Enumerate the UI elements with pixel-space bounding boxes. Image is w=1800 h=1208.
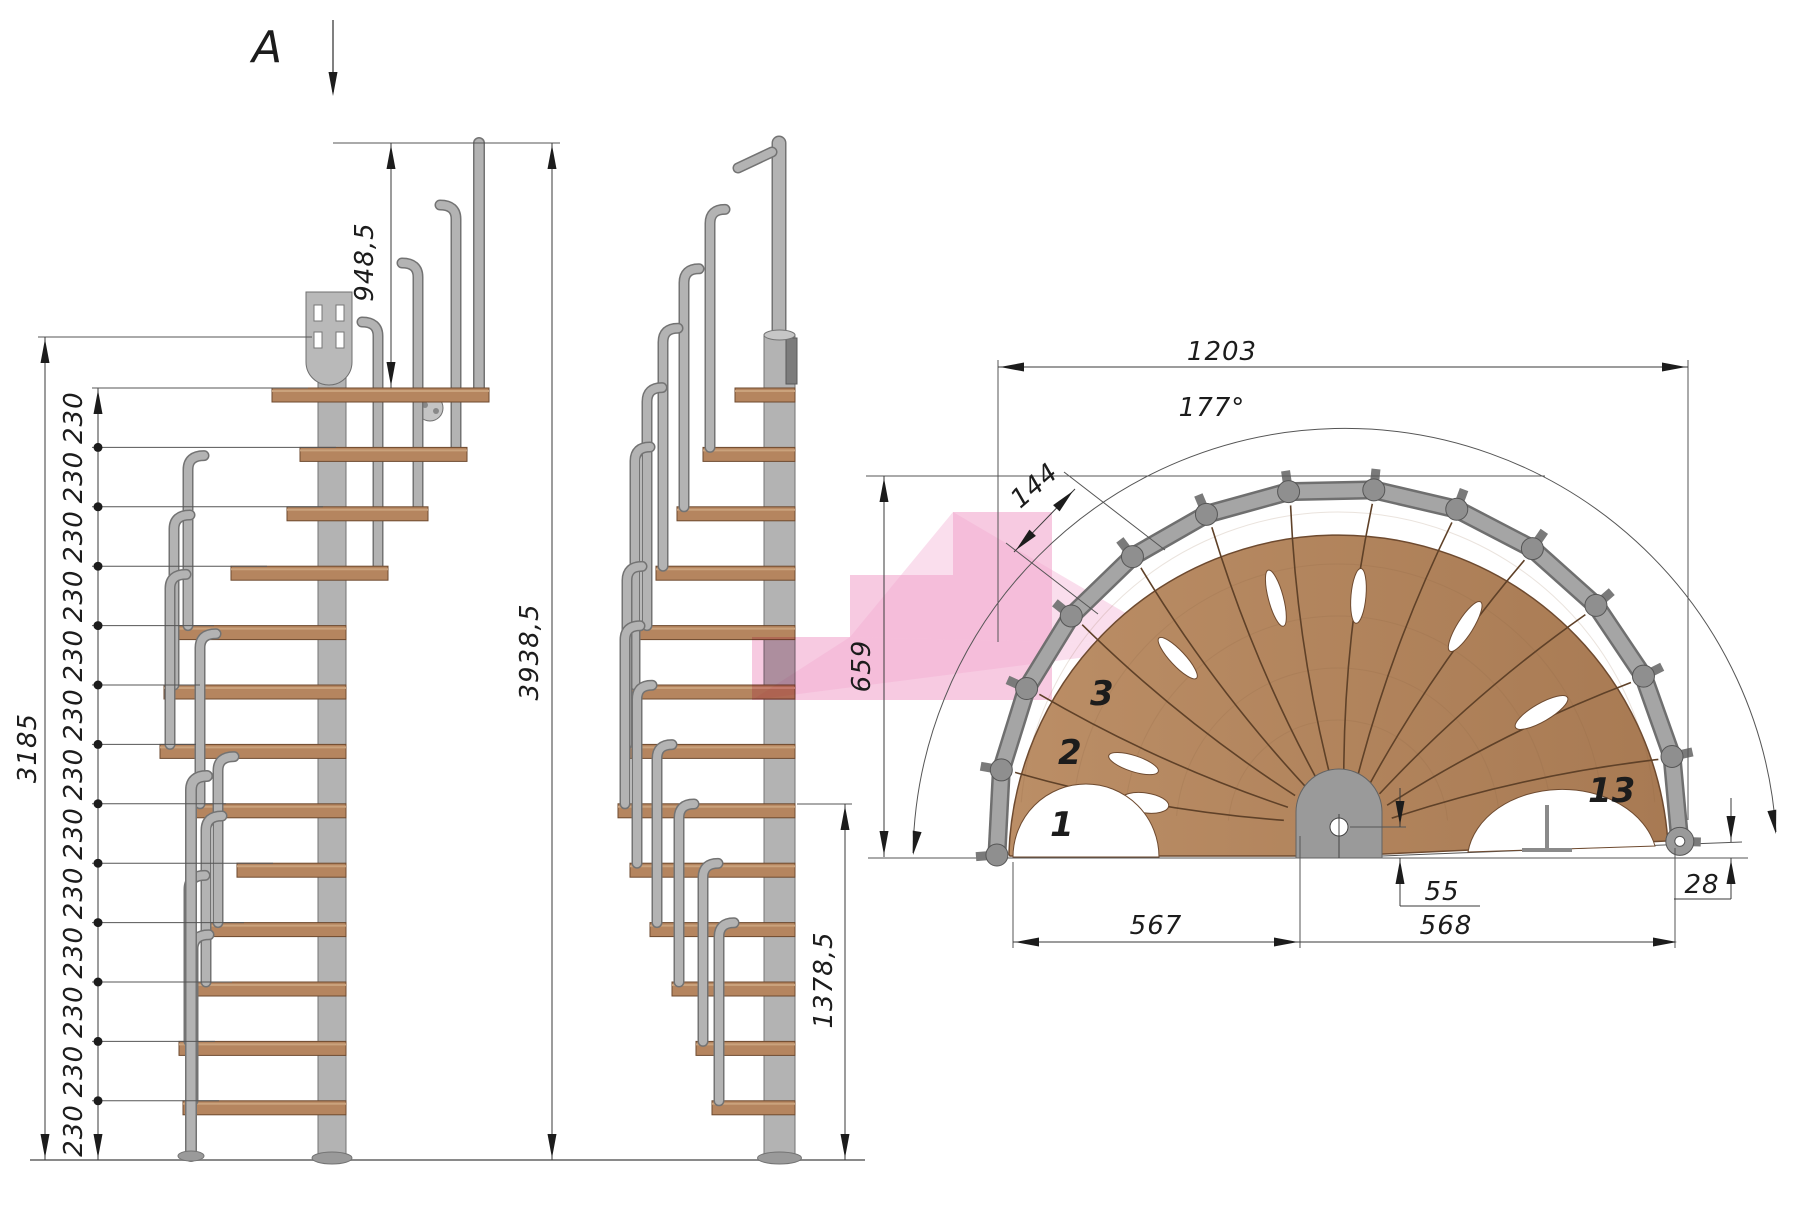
dim-dot (94, 562, 103, 571)
dim-sweep-angle: 177° (1179, 393, 1246, 423)
step-number-1: 1 (1050, 805, 1074, 845)
post-foot (178, 1151, 204, 1161)
dim-230-label: 230 (59, 985, 89, 1038)
handrail-knuckle (1446, 498, 1468, 520)
dim-dot (94, 681, 103, 690)
dim-right-half: 568 (1420, 911, 1473, 941)
section-arrow-label: A (249, 22, 282, 73)
handrail-tube (1289, 490, 1374, 492)
dim-arrow (1274, 938, 1298, 947)
handrail-tube (1374, 490, 1457, 509)
handrail-tube (1457, 509, 1533, 548)
handrail-tube (1596, 605, 1644, 676)
tube (663, 328, 678, 566)
dim-dot (94, 1037, 103, 1046)
left-pole-foot (312, 1152, 352, 1164)
handrail-knuckle (1632, 665, 1654, 687)
tube (188, 456, 204, 626)
dim-230-label: 230 (59, 688, 89, 741)
handrail-knuckle (1060, 605, 1082, 627)
plate-slot (314, 305, 322, 321)
dim-arrow (1396, 860, 1405, 884)
dim-end-offset: 28 (1684, 870, 1719, 900)
dim-total-height: 3938,5 (515, 604, 545, 701)
staircase-drawing: 230230230230230230230230230230230230230 … (0, 0, 1800, 1208)
dim-arrow (841, 1134, 850, 1158)
tube (719, 923, 734, 1101)
dim-arrow (1015, 938, 1039, 947)
dim-230-label: 230 (59, 1104, 89, 1157)
dim-arrow (880, 478, 889, 502)
handrail-knuckle (1121, 546, 1143, 568)
dim-dot (94, 502, 103, 511)
tube (710, 209, 725, 447)
dim-230-label: 230 (59, 451, 89, 504)
dim-arrow (880, 831, 889, 855)
step-number-3: 3 (1090, 674, 1114, 714)
arc-arrow-left (913, 831, 922, 855)
dim-230-label: 230 (59, 867, 89, 920)
dim-dot (94, 621, 103, 630)
dim-arrow (387, 362, 396, 386)
tube (218, 757, 234, 923)
dim-center-offset: 55 (1424, 877, 1459, 907)
pole-connector (786, 338, 797, 384)
dim-dot (94, 1096, 103, 1105)
flange-hole (433, 408, 439, 414)
handrail-knuckle (1278, 481, 1300, 503)
dim-230-label: 230 (59, 807, 89, 860)
step-number-2: 2 (1058, 733, 1082, 773)
drawing-sheet: 230230230230230230230230230230230230230 … (0, 0, 1800, 1208)
arc-arrow-right (1767, 810, 1776, 834)
handrail-tube (1132, 514, 1206, 556)
dim-arrow (841, 806, 850, 830)
dim-dot (94, 799, 103, 808)
handrail-knuckle (986, 844, 1008, 866)
dim-rail-height: 948,5 (350, 222, 380, 301)
ext-144-b (1064, 472, 1165, 550)
tube (637, 685, 652, 863)
dim-dot (94, 859, 103, 868)
dim-230-label: 230 (59, 629, 89, 682)
dim-arrow (41, 1134, 50, 1158)
handrail-knuckle (1363, 479, 1385, 501)
dim-dot (94, 918, 103, 927)
dim-dot (94, 978, 103, 987)
dim-arrow (1000, 363, 1024, 372)
dim-left-half: 567 (1130, 911, 1183, 941)
dim-arrow (94, 390, 103, 414)
handrail-tube (1532, 549, 1596, 606)
dim-stair-height: 3185 (13, 713, 43, 783)
left-pole (318, 300, 346, 1160)
pole-cap (764, 330, 795, 340)
dim-dot (94, 443, 103, 452)
dim-230-label: 230 (59, 926, 89, 979)
dim-arrow (387, 145, 396, 169)
handrail-knuckle (1195, 503, 1217, 525)
handrail-knuckle (990, 759, 1012, 781)
section-arrow-head (329, 72, 338, 96)
wall-plate (306, 292, 352, 385)
dim-arrow (1727, 816, 1736, 840)
tube (684, 269, 699, 507)
dim-arrow (1662, 363, 1686, 372)
dim-arrow (1727, 860, 1736, 884)
dim-arrow (41, 339, 50, 363)
plate-slot (336, 332, 344, 348)
dim-230-label: 230 (59, 748, 89, 801)
handrail-tube (997, 770, 1001, 855)
dim-overall-width: 1203 (1187, 337, 1257, 367)
plate-slot (336, 305, 344, 321)
tube (402, 263, 418, 507)
handrail-knuckle (1661, 745, 1683, 767)
dim-arrow (548, 1134, 557, 1158)
handrail-knuckle (1521, 538, 1543, 560)
handrail-end-hole (1675, 836, 1685, 846)
tube (679, 804, 694, 982)
dim-arrow (94, 1134, 103, 1158)
dim-footprint-depth: 659 (847, 640, 877, 693)
dim-dot (94, 740, 103, 749)
dim-230-label: 230 (59, 391, 89, 444)
plate-slot (314, 332, 322, 348)
dim-230-label: 230 (59, 570, 89, 623)
tube (657, 745, 672, 923)
tube (362, 322, 378, 566)
handrail-knuckle (1585, 594, 1607, 616)
handrail-knuckle (1016, 678, 1038, 700)
dim-lower-height: 1378,5 (809, 932, 839, 1029)
left-elevation-view (160, 143, 489, 1164)
dim-230-label: 230 (59, 1045, 89, 1098)
middle-pole-foot (758, 1152, 802, 1164)
dim-230-label: 230 (59, 510, 89, 563)
dim-arrow (1653, 938, 1677, 947)
step-number-13: 13 (1588, 771, 1635, 811)
dim-arrow (548, 145, 557, 169)
